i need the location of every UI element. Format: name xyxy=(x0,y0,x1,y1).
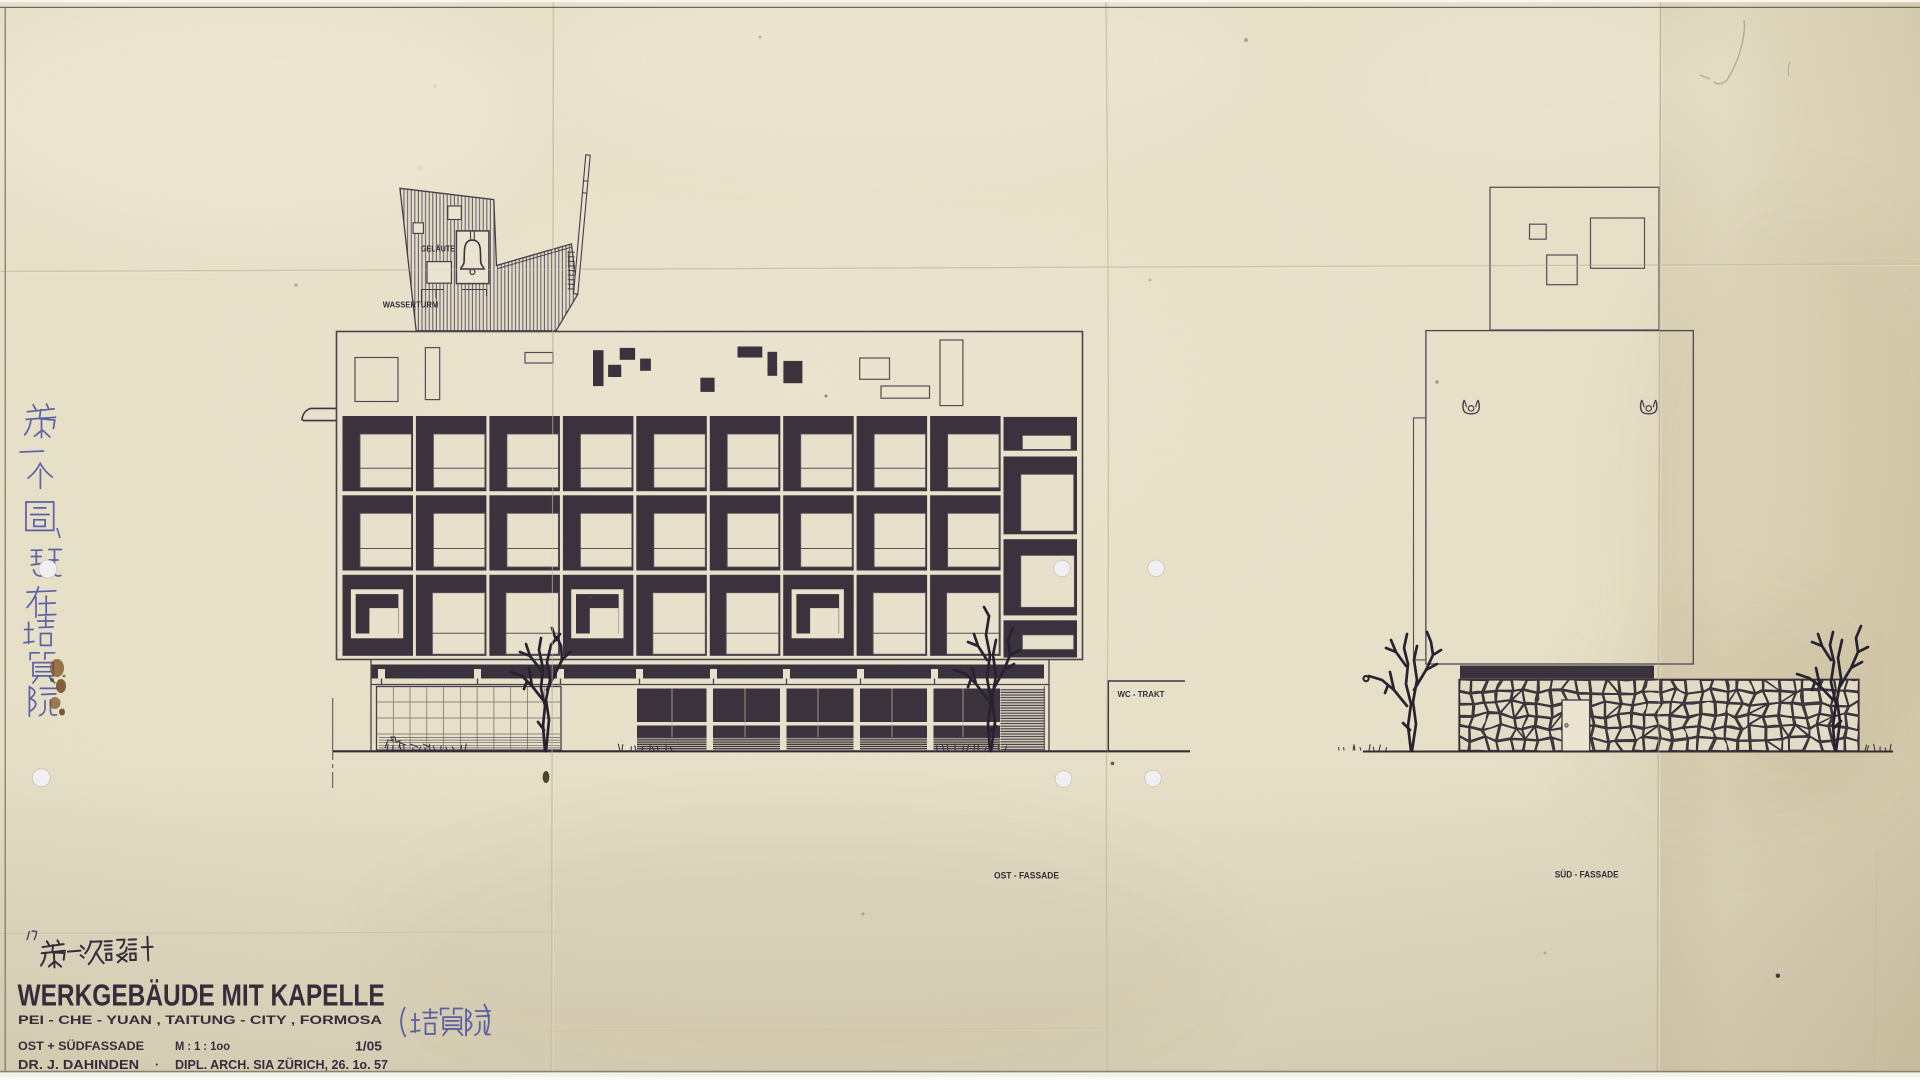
svg-text:1/05: 1/05 xyxy=(355,1039,382,1054)
svg-text:OST - FASSADE: OST - FASSADE xyxy=(994,870,1059,881)
svg-text:M : 1 : 1oo: M : 1 : 1oo xyxy=(175,1039,230,1053)
svg-text:WASSERTURM: WASSERTURM xyxy=(383,299,439,309)
svg-text:WERKGEBÄUDE MIT KAPELLE: WERKGEBÄUDE MIT KAPELLE xyxy=(18,979,385,1013)
svg-text:GELÄUTE: GELÄUTE xyxy=(421,243,455,253)
svg-text:PEI - CHE - YUAN , TAITU: PEI - CHE - YUAN , TAITUNG - CITY , FORM… xyxy=(18,1013,383,1027)
svg-text:OST + SÜDFASSADE: OST + SÜDFASSADE xyxy=(18,1038,144,1053)
svg-text:WC - TRAKT: WC - TRAKT xyxy=(1118,689,1166,699)
svg-text:SÜD - FASSADE: SÜD - FASSADE xyxy=(1555,869,1619,880)
svg-text:DR. J. DAHINDEN: DR. J. DAHINDEN xyxy=(18,1058,139,1072)
svg-text:·: · xyxy=(155,1058,159,1072)
svg-text:DIPL. ARCH. SIA ZÜRICH, 26. 1: DIPL. ARCH. SIA ZÜRICH, 26. 1o. 57 xyxy=(175,1057,388,1072)
